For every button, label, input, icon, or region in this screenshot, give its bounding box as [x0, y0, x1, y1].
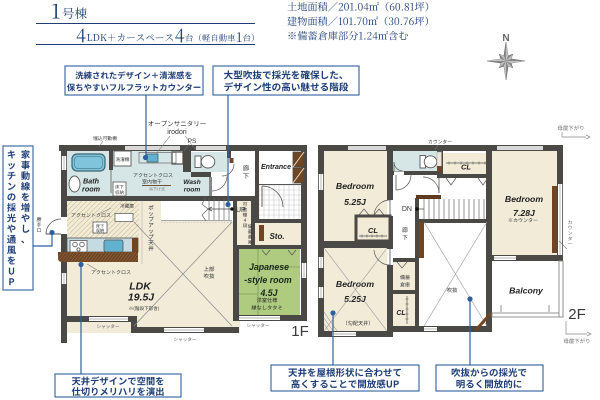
svg-text:Bedroom: Bedroom: [336, 279, 374, 289]
svg-text:19.5J: 19.5J: [128, 292, 155, 304]
svg-text:DN: DN: [402, 206, 412, 213]
svg-text:room: room: [82, 185, 101, 194]
svg-text:Japanese: Japanese: [249, 262, 289, 272]
svg-text:Bedroom: Bedroom: [336, 181, 374, 191]
svg-text:Sto.: Sto.: [269, 232, 284, 241]
svg-text:4.5J: 4.5J: [259, 288, 278, 298]
svg-text:5.25J: 5.25J: [344, 197, 366, 207]
svg-text:N: N: [502, 33, 509, 44]
svg-text:2F: 2F: [568, 306, 586, 323]
svg-text:CL: CL: [368, 226, 378, 235]
svg-text:irodori: irodori: [167, 129, 187, 136]
svg-text:PS: PS: [188, 138, 197, 145]
svg-text:Wash: Wash: [183, 179, 200, 186]
svg-text:Entrance: Entrance: [261, 164, 291, 171]
svg-text:Bedroom: Bedroom: [505, 194, 543, 204]
svg-text:Balcony: Balcony: [509, 286, 544, 296]
svg-text:1F: 1F: [291, 323, 309, 340]
svg-text:-style room: -style room: [244, 275, 292, 285]
svg-text:7.28J: 7.28J: [513, 208, 535, 218]
svg-text:room: room: [184, 187, 201, 194]
svg-text:CL: CL: [461, 163, 471, 172]
svg-text:CL: CL: [396, 310, 405, 317]
